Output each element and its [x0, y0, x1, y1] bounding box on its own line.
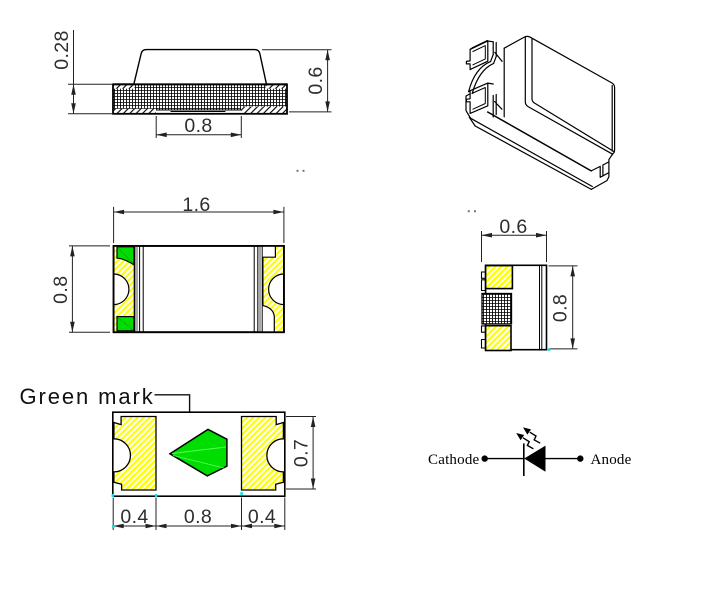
- svg-text:0.6: 0.6: [305, 66, 327, 94]
- svg-text:Cathode: Cathode: [428, 452, 480, 468]
- svg-text:0.4: 0.4: [248, 506, 276, 528]
- svg-text:0.28: 0.28: [51, 30, 73, 70]
- svg-text:Anode: Anode: [591, 452, 632, 468]
- svg-text:Green mark: Green mark: [20, 384, 155, 409]
- svg-text:0.8: 0.8: [550, 294, 572, 322]
- svg-text:0.8: 0.8: [50, 276, 72, 304]
- svg-text:1.6: 1.6: [182, 194, 210, 216]
- svg-text:0.7: 0.7: [291, 439, 313, 467]
- svg-text:0.8: 0.8: [184, 115, 212, 137]
- svg-text:0.6: 0.6: [499, 216, 527, 238]
- svg-text:0.8: 0.8: [184, 506, 212, 528]
- svg-text:0.4: 0.4: [120, 506, 148, 528]
